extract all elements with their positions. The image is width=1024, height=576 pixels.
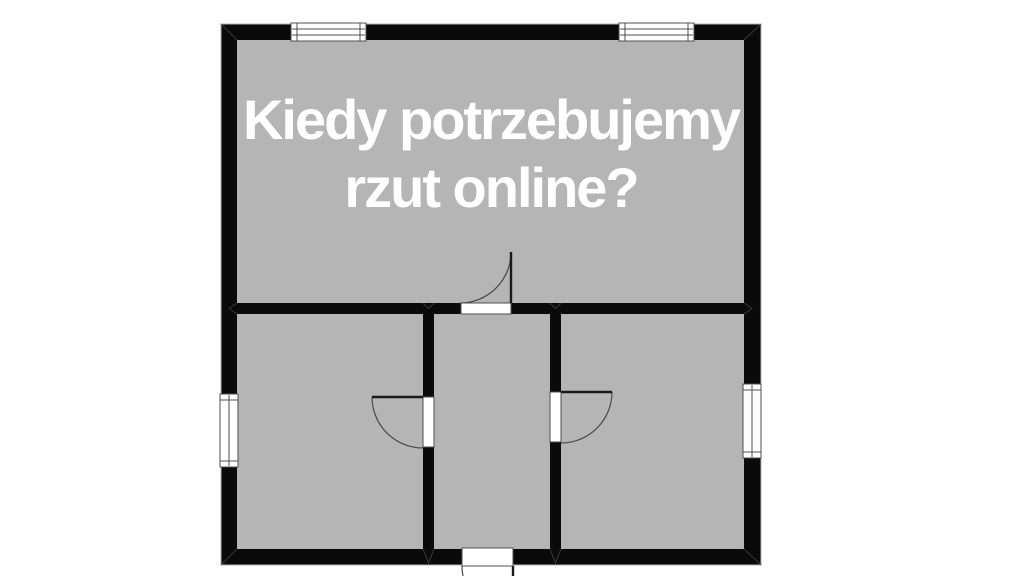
- title-line-1: Kiedy potrzebujemy: [243, 88, 741, 151]
- window-top-right-frame: [619, 23, 694, 41]
- door-opening-top-room: [461, 303, 511, 314]
- swing-arc-entrance-door: [462, 566, 513, 576]
- window-top-right: [619, 23, 694, 41]
- door-opening-left-room: [423, 397, 434, 447]
- window-right: [743, 384, 761, 458]
- door-opening-entrance: [462, 548, 513, 566]
- window-left: [220, 394, 238, 467]
- floorplan-svg: Kiedy potrzebujemy rzut online?: [0, 0, 1024, 576]
- floorplan-canvas: Kiedy potrzebujemy rzut online?: [0, 0, 1024, 576]
- title-line-2: rzut online?: [344, 156, 637, 219]
- window-top-left: [291, 23, 366, 41]
- window-top-left-frame: [291, 23, 366, 41]
- door-opening-right-room: [550, 392, 561, 442]
